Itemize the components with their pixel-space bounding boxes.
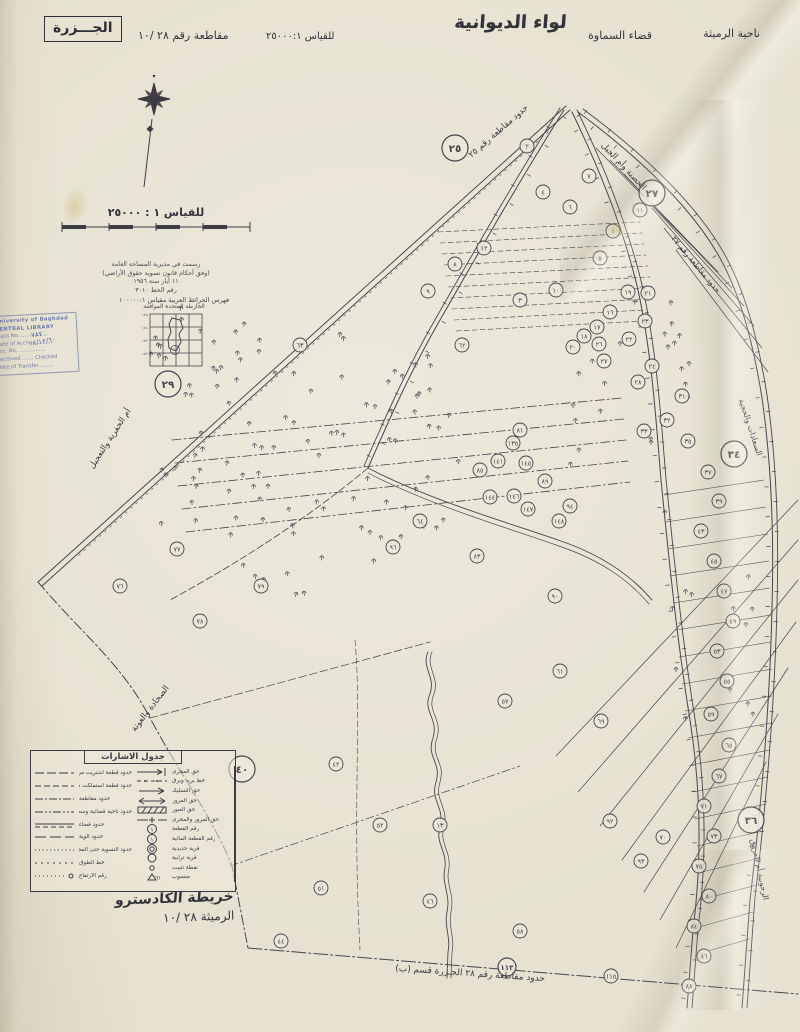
svg-text:٣٧: ٣٧ [705, 468, 712, 476]
parcel-number: ٤٢ [329, 757, 343, 771]
legend-symbol-smallcircle-icon [136, 863, 169, 873]
svg-text:٦٣: ٦٣ [297, 341, 304, 349]
legend-item-label: قرية ترابية [172, 855, 197, 861]
legend-item: حق المجرى [136, 767, 232, 777]
svg-text:٩٤: ٩٤ [567, 502, 574, 510]
svg-text:٢٢: ٢٢ [626, 335, 633, 343]
parcel-number: ٨٥ [473, 463, 487, 477]
svg-text:١٨: ١٨ [581, 332, 588, 340]
parcel-number: ٢٢ [622, 332, 636, 346]
svg-text:٨٩: ٨٩ [542, 477, 549, 485]
parcel-number: ٨٩ [538, 474, 552, 488]
legend-item: حدود قطعة استملكت من قبل الحكومة [34, 780, 132, 793]
parcel-number: ١٤١ [491, 454, 505, 468]
legend-symbol-dashplus-icon [136, 815, 169, 825]
legend-item: قرية ترابية [136, 853, 232, 863]
parcel-number: ٧١ [697, 799, 711, 813]
parcel-number: ٨٠ [702, 889, 716, 903]
legend-item-label: نقطة تثبيت [172, 865, 198, 871]
index-map-grid: ١٤٥١٤٤١٤٣١٤٢ [142, 310, 206, 372]
boundary-label: أم الحفرية والتعجيل [86, 406, 134, 471]
survey-note-line: (وفق أحكام قانون تسوية حقوق الأراضي) [58, 270, 254, 279]
legend-title: جدول الاشارات [84, 751, 182, 764]
parcel-number: ١٢ [477, 241, 491, 255]
svg-text:١١: ١١ [637, 206, 644, 214]
parcel-number: ٢٧ [597, 354, 611, 368]
legend-item-label: حق المرور [172, 798, 197, 804]
parcel-number: ٨٤ [687, 919, 701, 933]
parcel-number: ٦٤ [413, 514, 427, 528]
svg-text:٢٨: ٢٨ [635, 378, 642, 386]
svg-text:٦١: ٦١ [557, 667, 564, 675]
legend-item: خط الطوق [34, 857, 132, 870]
boundary-label: الصحادة والعوتة [129, 684, 171, 734]
parcel-number: ٧٠ [656, 830, 670, 844]
svg-text:٢٦: ٢٦ [596, 340, 603, 348]
parcel-number: ٣٣ [637, 424, 651, 438]
svg-text:٨١: ٨١ [517, 426, 524, 434]
parcel-number: ٧ [582, 169, 596, 183]
svg-text:٥١: ٥١ [318, 884, 325, 892]
legend-item: حدود قطعة اشتريت من قبل مديرية الري [34, 767, 132, 780]
boundary-label: الحصنة وأم الجبل [599, 139, 650, 192]
parcel-number: ٢ [520, 139, 534, 153]
parcel-number: ٣٧ [701, 465, 715, 479]
svg-text:٢: ٢ [525, 142, 529, 150]
legend-item: حدود مقاطعة [34, 793, 132, 806]
legend-symbol-arrow-icon [136, 786, 169, 796]
parcel-number: ٨٣ [470, 549, 484, 563]
index-map-title: فهرس الخرائط العربية مقياس ١٠٠٠٠٠:١ [84, 296, 264, 304]
legend-item: حق المرور [136, 796, 232, 806]
parcel-number: ١١ [633, 203, 647, 217]
parcel-number: ٨٦ [697, 949, 711, 963]
legend-symbol-circle1-icon: ١ [136, 824, 169, 834]
svg-text:١٤٤: ١٤٤ [485, 493, 495, 501]
legend-symbol-longdash-icon [34, 768, 76, 778]
legend-item: رقم الارتفاع [34, 869, 132, 882]
parcel-number: ٤٣ [694, 524, 708, 538]
parcel-number: ٦٣ [293, 338, 307, 352]
svg-text:٥٧: ٥٧ [502, 697, 509, 705]
svg-text:٤٠: ٤٠ [236, 764, 249, 776]
legend-box: جدول الاشارات حدود قطعة اشتريت من قبل مد… [30, 750, 236, 892]
parcel-number: ٢٤ [645, 359, 659, 373]
parcel-number: ١٣٥ [506, 436, 520, 450]
svg-text:٤٣: ٤٣ [698, 527, 705, 535]
svg-text:٣١: ٣١ [679, 392, 686, 400]
legend-item-label: حدود التسوية حتى المجرى [79, 847, 132, 853]
parcel-number: ٩٦ [386, 540, 400, 554]
district-number: ٣٤ [721, 441, 747, 467]
parcel-number: ٥٩ [704, 707, 718, 721]
legend-item-label: حق التسليك [172, 788, 200, 794]
parcel-number: ٧٨ [193, 614, 207, 628]
svg-text:٣٤: ٣٤ [728, 449, 741, 461]
svg-text:٦٥: ٦٥ [726, 741, 733, 749]
svg-text:٧٨: ٧٨ [197, 617, 204, 625]
svg-text:٦٩: ٦٩ [598, 717, 605, 725]
svg-text:١٤٥: ١٤٥ [521, 459, 532, 467]
svg-text:٦: ٦ [568, 203, 572, 211]
svg-text:٧١: ٧١ [701, 802, 708, 810]
header-liwa-title: لواء الديوانية [417, 12, 603, 33]
scale-block: للقياس ١ : ٢٥٠٠٠ رسمت في مديرية المساحة … [58, 206, 254, 295]
legend-symbol-flow-icon [136, 767, 169, 777]
svg-text:١٤٧: ١٤٧ [523, 505, 534, 513]
svg-text:١٤٨: ١٤٨ [554, 517, 565, 525]
parcel-number: ٦٧ [712, 769, 726, 783]
parcel-number: ١٠ [549, 283, 563, 297]
svg-text:٤٩: ٤٩ [730, 617, 737, 625]
parcel-number: ٦ [563, 200, 577, 214]
svg-text:١: ١ [150, 827, 153, 834]
sheet-name-box: الجـــزرة [44, 16, 122, 42]
legend-right-column: حق المجرى خط بريد وبرق حق التسليك حق الم… [134, 766, 235, 882]
svg-text:٧٣: ٧٣ [711, 832, 718, 840]
parcel-number: ٨٨ [682, 979, 696, 993]
parcel-number: ٩٣ [634, 854, 648, 868]
legend-symbol-soliddash-icon [34, 820, 76, 830]
svg-text:١: ١ [150, 836, 153, 843]
svg-text:٣٣: ٣٣ [641, 427, 648, 435]
legend-item-label: حدود مقاطعة [79, 796, 110, 802]
district-number: ٢٥ [442, 135, 468, 161]
parcel-number: ٩٢ [603, 814, 617, 828]
legend-item: حدود ألوية [34, 831, 132, 844]
parcel-number: ١٣ [433, 818, 447, 832]
legend-item-label: خط بريد وبرق [172, 778, 205, 784]
svg-text:٤٧: ٤٧ [721, 587, 728, 595]
footnote: خريطة الكادسترو الرميثة ٢٨ /١٠ [33, 889, 234, 930]
parcel-number: ١٩ [621, 285, 635, 299]
svg-text:٨٣: ٨٣ [474, 552, 481, 560]
parcel-number: ١٤٤ [483, 490, 497, 504]
legend-symbol-longdash2-icon [34, 832, 76, 842]
svg-text:٩٢: ٩٢ [607, 817, 614, 825]
svg-text:١٤١: ١٤١ [493, 457, 503, 465]
legend-item-label: حق المرور والمجرى [172, 817, 219, 823]
legend-item: رقم القطعة المائية ١ [136, 834, 232, 844]
svg-text:٧٩: ٧٩ [258, 582, 265, 590]
svg-text:٦٤: ٦٤ [417, 517, 424, 525]
legend-item-label: قرية حديدية [172, 846, 200, 852]
svg-text:٧٠: ٧٠ [660, 833, 667, 841]
library-stamp: University of Baghdad CENTRAL LIBRARY Cl… [0, 312, 80, 376]
parcel-number: ١٤٦ [507, 489, 521, 503]
svg-text:٤٢: ٤٢ [333, 760, 340, 768]
svg-text:٤٥: ٤٥ [711, 557, 718, 565]
legend-item: حق العبور [136, 805, 232, 815]
svg-text:٨٥: ٨٥ [477, 466, 484, 474]
boundary-label: حدود مقاطعة رقم ٢٧ [670, 234, 723, 294]
parcel-number: ٢٨ [631, 375, 645, 389]
parcel-number: ٣٥ [681, 434, 695, 448]
svg-text:٣٥: ٣٥ [685, 437, 692, 445]
svg-text:١٦: ١٦ [607, 308, 614, 316]
parcel-number: ٣٩ [712, 494, 726, 508]
svg-text:٦٧: ٦٧ [716, 772, 723, 780]
parcel-number: ٤٩ [726, 614, 740, 628]
svg-text:٤: ٤ [541, 188, 545, 196]
svg-text:٩٣: ٩٣ [638, 857, 645, 865]
svg-text:٣٢: ٣٢ [664, 416, 671, 424]
header-nahiya: ناحية الرميثة [703, 27, 760, 40]
parcel-number: ٦٥ [722, 738, 736, 752]
svg-text:٥٢: ٥٢ [377, 821, 384, 829]
svg-text:٩٦: ٩٦ [390, 543, 397, 551]
parcel-number: ٤٦ [423, 894, 437, 908]
svg-text:٩٠: ٩٠ [552, 592, 559, 600]
svg-text:٧٥: ٧٥ [696, 862, 703, 870]
legend-symbol-band-icon [136, 805, 169, 815]
svg-text:٧: ٧ [587, 172, 591, 180]
parcel-number: ٥١ [314, 881, 328, 895]
svg-text:١٤٥: ١٤٥ [142, 313, 148, 317]
svg-text:٢٩: ٢٩ [162, 379, 175, 391]
parcel-number: ٩ [421, 284, 435, 298]
parcel-number: ٥٨ [513, 924, 527, 938]
svg-text:١٢: ١٢ [481, 244, 488, 252]
parcel-number: ١٤٧ [521, 502, 535, 516]
svg-text:٦١: ٦١ [155, 876, 161, 882]
svg-text:١٣٥: ١٣٥ [508, 439, 519, 447]
svg-text:١٤٦: ١٤٦ [509, 492, 520, 500]
svg-text:٣: ٣ [518, 296, 522, 304]
survey-notes: رسمت في مديرية المساحة العامة(وفق أحكام … [58, 261, 254, 295]
svg-text:٣٦: ٣٦ [745, 815, 758, 827]
legend-item-label: رقم القطعة [172, 826, 199, 832]
parcel-number: ١٦ [603, 305, 617, 319]
compass-rose-icon [118, 75, 188, 200]
legend-item-label: خط الطوق [79, 860, 105, 866]
legend-symbol-dash2-icon [34, 781, 76, 791]
svg-text:٢٥: ٢٥ [449, 143, 462, 155]
legend-item-label: حدود قضاء [79, 822, 104, 828]
svg-text:١٤٢: ١٤٢ [142, 352, 148, 356]
svg-text:١٣: ١٣ [437, 821, 444, 829]
district-number: ٣٦ [738, 807, 764, 833]
parcel-number: ٢٦ [592, 337, 606, 351]
parcel-number: ٥ [593, 251, 607, 265]
svg-text:٨٤: ٨٤ [691, 922, 698, 930]
parcel-number: ٨١ [513, 423, 527, 437]
legend-symbol-dotso-icon [34, 871, 76, 881]
legend-item: منسوب ٦١ [136, 873, 232, 883]
legend-item-label: حق العبور [172, 807, 195, 813]
parcel-number: ١١٥ [604, 969, 618, 983]
legend-symbol-dashdot-icon [34, 794, 76, 804]
legend-item: قرية حديدية [136, 844, 232, 854]
legend-item: حدود ناحية قضائية وسط نهر [34, 805, 132, 818]
parcel-number: ٤٤ [274, 934, 288, 948]
scanned-cadastral-map-sheet: ٢٤٧٦١٥١٢٨٩٣١٠١١١٦١٧١٨٢٠٢٦٢٢١٩٢١٢٣٢٤٢٨٢٧٣… [0, 0, 800, 1032]
legend-item-label: حدود ناحية قضائية وسط نهر [79, 809, 132, 815]
parcel-number: ٩٠ [548, 589, 562, 603]
header-district-no: مقاطعة رقم ٢٨ /١٠ [138, 29, 229, 42]
parcel-number: ٤ [536, 185, 550, 199]
svg-text:٢٧: ٢٧ [601, 357, 608, 365]
svg-text:٥٩: ٥٩ [708, 710, 715, 718]
svg-text:٢٣: ٢٣ [642, 317, 649, 325]
survey-note-line: رقم الخط ٣٠١٠ [58, 287, 254, 296]
parcel-number: ٥٥ [720, 674, 734, 688]
parcel-number: ٧٥ [692, 859, 706, 873]
legend-symbol-circle1-icon: ١ [136, 834, 169, 844]
legend-item-label: حدود ألوية [79, 834, 103, 840]
legend-item-label: حق المجرى [172, 769, 199, 775]
legend-item: حق المرور والمجرى [136, 815, 232, 825]
parcel-number: ٢٠ [566, 340, 580, 354]
parcel-number: ٣١ [675, 389, 689, 403]
parcel-number: ١٨ [577, 329, 591, 343]
legend-item: رقم القطعة ١ [136, 825, 232, 835]
svg-text:٥: ٥ [598, 254, 602, 262]
boundary-label: الرحوبية أم العروق [749, 838, 772, 901]
survey-note-line: ١١ أيار سنة ١٩٥٦ [58, 278, 254, 287]
legend-item-label: رقم الارتفاع [79, 873, 107, 879]
svg-text:٢٧: ٢٧ [646, 188, 659, 200]
svg-text:٨٨: ٨٨ [686, 982, 693, 990]
svg-text:١٠: ١٠ [553, 286, 560, 294]
svg-text:٢١: ٢١ [645, 289, 652, 297]
svg-text:٥٥: ٥٥ [724, 677, 731, 685]
legend-item-label: حدود قطعة استملكت من قبل الحكومة [79, 783, 132, 789]
index-map: فهرس الخرائط العربية مقياس ١٠٠٠٠٠:١ الخا… [84, 296, 264, 376]
parcel-number: ٤٧ [717, 584, 731, 598]
svg-text:٦٢: ٦٢ [459, 341, 466, 349]
svg-text:٩: ٩ [426, 287, 430, 295]
parcel-number: ١٤٥ [519, 456, 533, 470]
parcel-number: ٧٣ [707, 829, 721, 843]
legend-item: حدود قضاء [34, 818, 132, 831]
svg-text:٧٦: ٧٦ [117, 582, 124, 590]
scale-bar [58, 219, 254, 235]
svg-text:١١٥: ١١٥ [606, 972, 617, 980]
parcel-number: ٧٩ [254, 579, 268, 593]
legend-item: خط بريد وبرق [136, 777, 232, 787]
svg-text:١٩: ١٩ [625, 288, 632, 296]
scale-text: للقياس ١ : ٢٥٠٠٠ [58, 206, 254, 219]
svg-text:٢٠: ٢٠ [570, 343, 577, 351]
parcel-number: ٦١ [553, 664, 567, 678]
svg-text:١٤٤: ١٤٤ [142, 326, 148, 330]
svg-text:٨٠: ٨٠ [706, 892, 713, 900]
parcel-number: ١٧ [590, 320, 604, 334]
parcel-number: ٨ [448, 257, 462, 271]
legend-symbol-circle-icon [136, 853, 169, 863]
svg-text:٥٨: ٥٨ [517, 927, 524, 935]
legend-symbol-dashdotdot-icon [34, 807, 76, 817]
paper-stain [608, 222, 624, 238]
parcel-number: ٧٧ [170, 542, 184, 556]
svg-text:١٤٣: ١٤٣ [142, 339, 148, 343]
legend-item: حدود التسوية حتى المجرى [34, 844, 132, 857]
parcel-number: ٦٢ [455, 338, 469, 352]
legend-symbol-dotted-icon [34, 845, 76, 855]
legend-symbol-telegraph-icon [136, 776, 169, 786]
parcel-number: ٧٦ [113, 579, 127, 593]
parcel-number: ٣ [513, 293, 527, 307]
parcel-number: ٤٥ [707, 554, 721, 568]
header-scale-note: للقياس ٢٥٠٠٠:١ [266, 31, 334, 42]
svg-text:٧٧: ٧٧ [174, 545, 181, 553]
parcel-number: ٥٢ [373, 818, 387, 832]
parcel-number: ٢١ [641, 286, 655, 300]
parcel-number: ٩٤ [563, 499, 577, 513]
legend-left-column: حدود قطعة اشتريت من قبل مديرية الري حدود… [31, 766, 134, 882]
svg-text:٨٦: ٨٦ [701, 952, 708, 960]
svg-text:٢٤: ٢٤ [649, 362, 656, 370]
boundary-label: حدود مقاطعة رقم ٢٥ [467, 103, 531, 160]
legend-item-label: رقم القطعة المائية [172, 836, 215, 842]
legend-symbol-bench-icon: ٦١ [136, 872, 169, 882]
parcel-number: ٣٢ [660, 413, 674, 427]
parcel-number: ٦٩ [594, 714, 608, 728]
parcel-number: ٥٧ [498, 694, 512, 708]
legend-item: نقطة تثبيت [136, 863, 232, 873]
legend-symbol-dblcircle-icon [136, 844, 169, 854]
svg-text:٤٦: ٤٦ [427, 897, 434, 905]
parcel-number: ١٤٨ [552, 514, 566, 528]
parcel-number: ٢٣ [638, 314, 652, 328]
legend-symbol-dblarrow-icon [136, 796, 169, 806]
svg-text:٤٤: ٤٤ [278, 937, 285, 945]
svg-text:٨: ٨ [453, 260, 457, 268]
survey-note-line: رسمت في مديرية المساحة العامة [58, 261, 254, 270]
svg-text:٣٩: ٣٩ [716, 497, 723, 505]
svg-text:٥٣: ٥٣ [714, 647, 721, 655]
legend-item-label: حدود قطعة اشتريت من قبل مديرية الري [79, 770, 132, 776]
parcel-number: ٥٣ [710, 644, 724, 658]
svg-text:١٧: ١٧ [594, 323, 601, 331]
legend-item-label: منسوب [172, 874, 190, 880]
legend-item: حق التسليك [136, 786, 232, 796]
legend-symbol-dotsquares-icon [34, 858, 76, 868]
